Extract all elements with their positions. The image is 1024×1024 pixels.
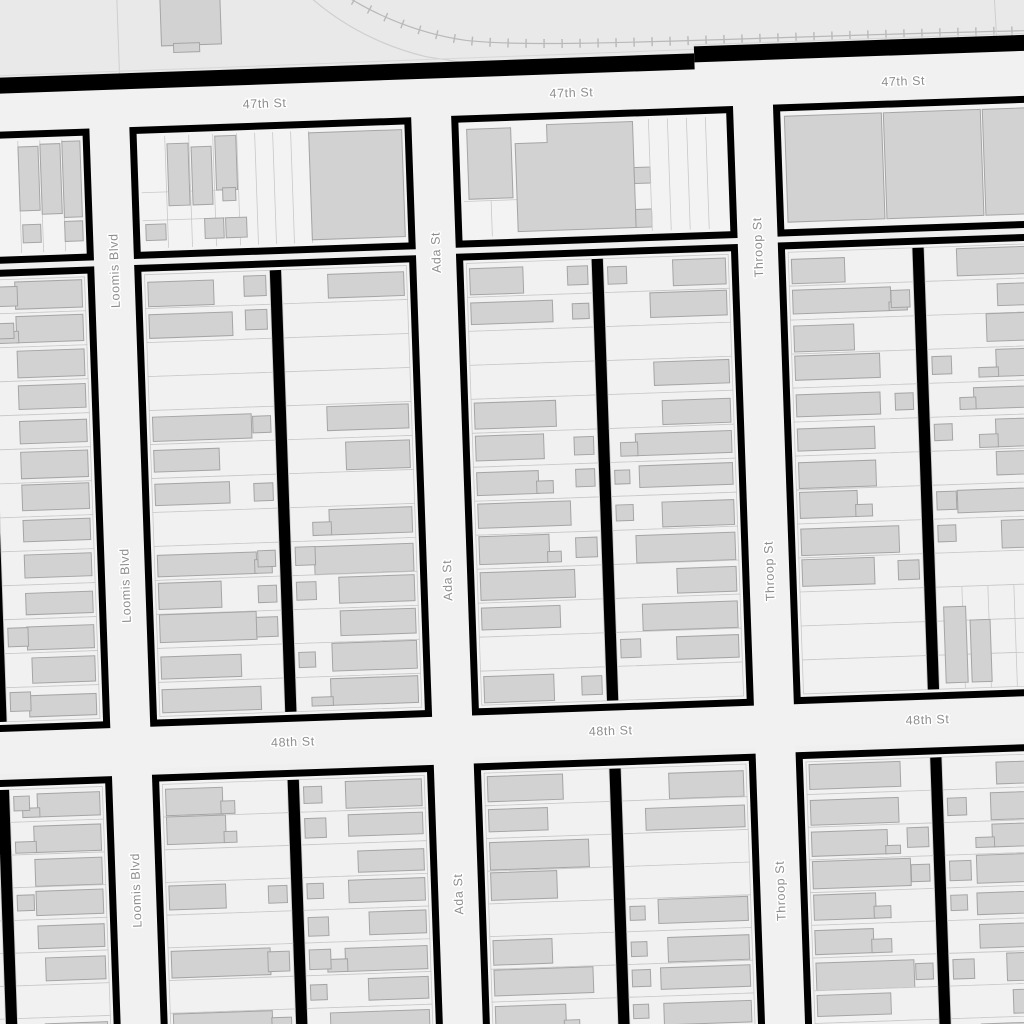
garage-footprint [307,883,324,899]
street-label: Loomis Blvd [128,853,145,928]
building-footprint [329,507,413,535]
garage-footprint [8,628,29,647]
building-footprint [29,693,97,717]
garage-footprint [256,617,278,637]
street-label: Loomis Blvd [117,548,134,623]
garage-footprint [621,639,642,658]
building-footprint [345,946,428,972]
building-footprint [159,0,222,46]
building-footprint [35,857,103,886]
building-footprint [488,808,548,832]
building-footprint [957,487,1024,513]
garage-footprint [268,885,287,903]
building-footprint [158,581,222,609]
building-footprint [45,956,106,981]
building-footprint [37,792,100,817]
building-footprint [812,858,911,889]
building-footprint [676,635,739,660]
building-footprint [23,518,91,542]
building-footprint [477,471,539,496]
building-footprint [32,656,96,683]
building-footprint [992,821,1024,847]
building-footprint [799,490,857,518]
building-footprint [162,686,262,713]
garage-footprint [309,949,331,969]
garage-footprint [947,798,966,816]
building-footprint [815,929,874,955]
building-footprint [471,300,553,324]
street-label: 48th St [905,712,949,728]
building-footprint [36,889,104,916]
street-label: 48th St [589,723,633,739]
building-footprint-large [309,130,406,240]
garage-footprint [254,483,274,501]
garage-footprint [567,266,588,285]
building-footprint [346,440,411,470]
garage-footprint [934,424,952,441]
building-footprint [327,404,409,431]
building-footprint [796,392,881,417]
building-footprint [157,552,257,577]
building-footprint [332,640,418,671]
building-footprint [635,430,732,455]
building-footprint [358,849,425,873]
street-label: Ada St [451,873,466,915]
building-footprint [977,890,1024,915]
garage-footprint [258,550,276,567]
building-footprint [986,311,1024,341]
garage-footprint [631,942,647,957]
garage-footprint [582,676,603,695]
building-footprint [494,967,594,996]
building-footprint [148,280,214,307]
garage-footprint [14,796,30,811]
building-footprint [166,815,226,845]
building-footprint [664,1000,752,1024]
garage-footprint [916,963,934,980]
building-footprint [810,797,899,825]
building-footprint [154,448,220,472]
building-footprint [165,787,223,815]
street-label: Ada St [428,232,443,274]
building-footprint [1001,518,1024,548]
garage-footprint [632,969,651,986]
garage-footprint [572,303,589,319]
building-footprint [159,611,257,642]
garage-footprint [932,356,952,374]
building-footprint [481,605,560,630]
garage-footprint [244,275,267,296]
garage-footprint [17,895,35,911]
street-label: 48th St [271,734,315,750]
building-footprint [26,591,94,615]
garage-footprint [576,537,598,557]
garage-footprint [951,895,968,911]
building-footprint [24,553,92,578]
building-footprint [493,939,553,966]
garage-footprint [245,309,267,330]
building-footprint [642,601,738,631]
garage-footprint [616,504,634,520]
building-footprint [339,575,415,604]
building-footprint [802,557,875,586]
garage-footprint [310,984,327,1000]
building-footprint-large [982,107,1024,215]
building-footprint [794,324,855,352]
building-footprint [152,414,251,442]
building-footprint [797,426,875,451]
building-footprint [171,948,271,978]
garage-footprint [953,959,975,979]
building-footprint [15,280,83,310]
building-footprint [474,400,556,429]
building-footprint [816,960,915,991]
garage-footprint [296,582,316,601]
garage-footprint [633,1004,649,1019]
building-footprint [997,282,1024,306]
building-footprint [169,884,227,910]
street-label: Ada St [440,559,455,601]
garage-footprint [272,1017,292,1024]
building-footprint [973,385,1024,409]
garage-footprint [0,323,14,339]
garage-footprint [898,560,920,580]
street-label: Throop St [761,541,777,602]
building-footprint [662,500,735,527]
building-footprint [791,258,845,284]
garage-footprint [608,266,627,284]
building-footprint [27,625,95,650]
building-footprint [22,483,90,511]
garage-footprint [305,818,327,838]
building-footprint-large [784,113,885,222]
building-footprint [677,566,737,593]
street-label: 47th St [242,96,286,112]
building-footprint [368,976,429,1000]
building-footprint [809,761,901,789]
street-label: 47th St [881,74,925,90]
garage-footprint [10,692,31,712]
building-footprint [669,771,744,799]
building-footprint [34,824,102,853]
building-footprint [331,676,419,706]
street-label: Throop St [773,860,789,921]
garage-footprint [907,827,929,847]
building-footprint [814,893,877,920]
garage-footprint [895,393,914,410]
building-footprint [38,924,105,949]
building-footprint [658,896,748,923]
street-label: Throop St [750,217,766,278]
building-footprint [979,921,1024,948]
building-footprint-large [883,109,984,218]
building-footprint [668,935,750,962]
garage-footprint [0,286,18,306]
building-footprint [817,993,891,1017]
garage-footprint [576,469,596,487]
building-footprint [480,569,575,600]
building-footprint [1013,987,1024,1013]
building-footprint [654,359,730,385]
building-footprint [1007,951,1024,981]
building-footprint [795,353,881,380]
building-footprint [469,267,523,295]
building-footprint [369,910,427,935]
building-footprint [811,830,888,857]
building-footprint [475,434,544,461]
building-footprint [487,774,563,802]
building-footprint [348,878,425,903]
map-canvas[interactable]: 47th St47th St47th St48th St48th St48th … [0,0,1024,1024]
building-footprint [18,384,86,410]
building-footprint [672,258,726,286]
street-label: 47th St [549,85,593,101]
building-footprint [340,608,416,635]
building-footprint [490,839,590,870]
building-footprint [328,272,405,298]
garage-footprint [308,917,329,936]
building-footprint [970,619,992,682]
garage-footprint [253,416,272,433]
garage-footprint [891,290,910,308]
building-footprint [155,482,230,506]
garage-footprint [911,864,930,882]
building-footprint [661,965,751,990]
building-footprint [995,417,1024,447]
building-footprint [314,543,414,574]
building-footprint [792,287,891,314]
building-footprint [348,812,423,836]
building-footprint [798,460,876,488]
mid-residential-blocks [0,233,1024,738]
building-footprint [491,871,558,901]
garage-footprint [630,906,646,920]
street-label: Loomis Blvd [106,233,123,308]
garage-footprint [258,585,277,603]
building-footprint [639,463,733,488]
garage-footprint [937,491,957,510]
building-footprint [345,779,422,808]
garage-footprint [295,546,316,565]
building-footprint [996,760,1024,784]
map-viewport[interactable]: 47th St47th St47th St48th St48th St48th … [0,0,1024,1024]
building-footprint [976,852,1024,883]
building-footprint [17,349,85,378]
garage-footprint [938,525,957,542]
garage-footprint [615,470,630,484]
building-footprint [996,347,1024,376]
garage-footprint [949,860,971,880]
building-footprint [996,449,1024,475]
building-footprint [478,501,571,529]
garage-footprint [303,786,322,803]
garage-footprint [574,436,594,455]
building-footprint [650,290,727,317]
garage-footprint [299,652,316,668]
building-footprint [801,526,900,556]
building-footprint [21,450,89,479]
building-footprint [20,419,88,444]
building-footprint [149,312,233,339]
building-footprint [956,245,1024,275]
building-footprint [662,398,731,424]
map-rotated-layer: 47th St47th St47th St48th St48th St48th … [0,0,1024,1024]
building-footprint [944,606,969,683]
garage-footprint [268,951,290,972]
building-footprint [479,534,550,564]
building-footprint [16,314,84,343]
building-footprint [990,790,1024,820]
building-footprint [495,1004,566,1024]
building-footprint [161,654,242,679]
building-footprint [636,532,736,563]
building-footprint [484,674,555,703]
building-footprint [645,805,745,830]
